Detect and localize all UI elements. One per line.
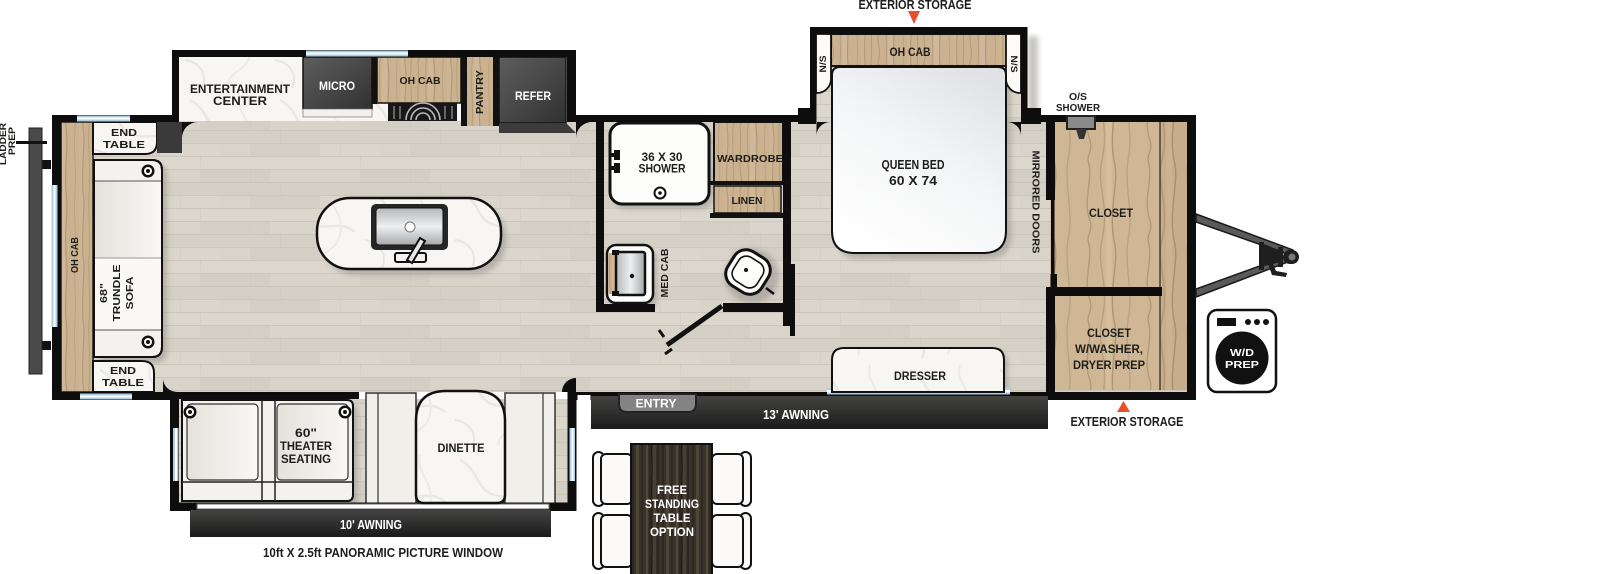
svg-text:CENTER: CENTER bbox=[213, 94, 267, 108]
svg-text:TABLE: TABLE bbox=[103, 139, 145, 151]
svg-text:W/D: W/D bbox=[1230, 347, 1254, 359]
svg-text:N/S: N/S bbox=[1008, 56, 1019, 73]
svg-text:OPTION: OPTION bbox=[650, 527, 694, 539]
svg-text:OH CAB: OH CAB bbox=[69, 237, 81, 273]
svg-text:OH CAB: OH CAB bbox=[890, 45, 931, 59]
svg-text:SOFA: SOFA bbox=[124, 276, 136, 309]
svg-text:EXTERIOR STORAGE: EXTERIOR STORAGE bbox=[1071, 414, 1184, 429]
svg-text:OH CAB: OH CAB bbox=[400, 75, 441, 87]
svg-text:SHOWER: SHOWER bbox=[639, 164, 687, 176]
svg-text:TABLE: TABLE bbox=[654, 513, 691, 525]
svg-text:SEATING: SEATING bbox=[281, 454, 331, 466]
svg-text:DINETTE: DINETTE bbox=[438, 443, 485, 455]
svg-text:36 X 30: 36 X 30 bbox=[642, 152, 683, 164]
svg-text:60 X 74: 60 X 74 bbox=[889, 173, 938, 188]
svg-text:LINEN: LINEN bbox=[732, 195, 763, 207]
svg-text:MIRRORED DOORS: MIRRORED DOORS bbox=[1030, 151, 1042, 254]
svg-text:PANTRY: PANTRY bbox=[474, 70, 486, 114]
svg-text:TRUNDLE: TRUNDLE bbox=[111, 265, 123, 322]
svg-text:MICRO: MICRO bbox=[319, 79, 355, 93]
svg-text:QUEEN BED: QUEEN BED bbox=[882, 157, 945, 172]
svg-text:10' AWNING: 10' AWNING bbox=[340, 517, 402, 532]
svg-text:MED CAB: MED CAB bbox=[659, 248, 671, 297]
svg-text:CLOSET: CLOSET bbox=[1089, 206, 1134, 220]
svg-text:10ft X 2.5ft PANORAMIC PICTURE: 10ft X 2.5ft PANORAMIC PICTURE WINDOW bbox=[263, 545, 504, 560]
svg-text:DRYER PREP: DRYER PREP bbox=[1073, 358, 1145, 372]
svg-text:ENTRY: ENTRY bbox=[636, 397, 677, 411]
svg-text:FREE: FREE bbox=[657, 485, 687, 497]
svg-text:EXTERIOR STORAGE: EXTERIOR STORAGE bbox=[859, 0, 972, 12]
svg-text:TABLE: TABLE bbox=[102, 377, 144, 389]
svg-text:END: END bbox=[111, 127, 137, 139]
svg-text:N/S: N/S bbox=[818, 56, 829, 73]
svg-text:END: END bbox=[110, 365, 136, 377]
svg-text:REFER: REFER bbox=[515, 89, 551, 103]
svg-text:PREP: PREP bbox=[1225, 359, 1259, 371]
svg-text:60": 60" bbox=[295, 428, 317, 440]
svg-text:13' AWNING: 13' AWNING bbox=[763, 407, 829, 422]
svg-text:SHOWER: SHOWER bbox=[1056, 102, 1100, 114]
svg-text:PREP: PREP bbox=[7, 126, 18, 155]
svg-text:68": 68" bbox=[98, 283, 110, 303]
svg-text:STANDING: STANDING bbox=[645, 499, 699, 511]
svg-text:THEATER: THEATER bbox=[280, 441, 333, 453]
svg-text:WARDROBE: WARDROBE bbox=[717, 153, 783, 165]
svg-text:DRESSER: DRESSER bbox=[894, 369, 946, 383]
svg-text:W/WASHER,: W/WASHER, bbox=[1075, 342, 1143, 356]
svg-text:CLOSET: CLOSET bbox=[1087, 326, 1132, 340]
